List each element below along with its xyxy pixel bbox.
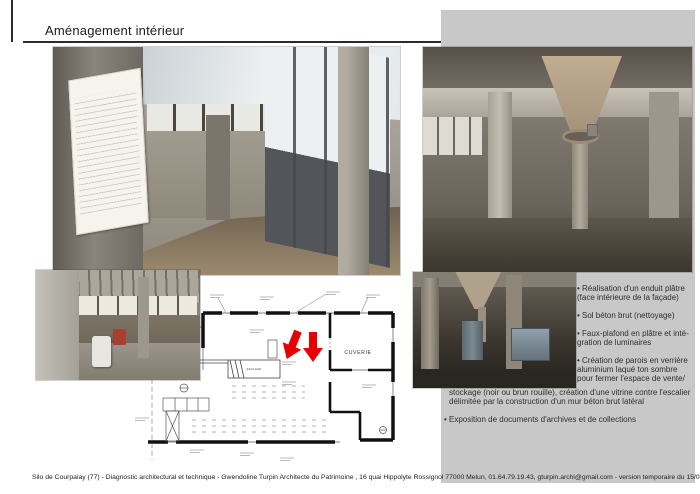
photo-red-chair <box>113 329 126 344</box>
photo-interior-empty-hall <box>36 270 200 380</box>
document-page: Aménagement intérieur <box>0 0 700 494</box>
notes-column: • Réalisation d'un enduit plâtre(face in… <box>577 284 695 383</box>
plan-room-walls <box>330 313 393 440</box>
footer-credit: Silo de Courpalay (77) - Diagnostic arch… <box>32 474 700 481</box>
note-line: délimitée par la construction d'un mur b… <box>444 397 694 406</box>
photo-white-sack <box>92 336 112 367</box>
plan-stair-label: ESCALIER <box>247 367 263 371</box>
plan-room-label-cuverie: CUVERIE <box>344 350 371 356</box>
note-line: aluminium laqué ton sombre <box>577 365 695 374</box>
red-arrows-annotation <box>277 327 323 362</box>
photo-glass-mullions <box>265 47 390 268</box>
photo-column <box>206 115 230 220</box>
photo-pinned-drawing-lines <box>74 87 142 216</box>
note-line: • Faux-plafond en plâtre et inté- <box>577 329 695 338</box>
photo-column <box>138 277 149 358</box>
page-title: Aménagement intérieur <box>45 23 184 38</box>
photo-floor-layer <box>413 369 576 388</box>
photo-interior-hopper <box>423 47 692 272</box>
note-line: • Réalisation d'un enduit plâtre <box>577 284 695 293</box>
photo-column <box>338 47 369 275</box>
photo-window-strip <box>423 117 482 155</box>
left-margin-rule <box>11 0 13 42</box>
note-line: • Création de parois en verrière <box>577 356 695 365</box>
note-line: (face intérieure de la façade) <box>577 293 695 302</box>
photo-machine <box>511 328 550 361</box>
photo-wall-layer <box>36 270 79 380</box>
photo-floor-layer <box>423 218 692 272</box>
note-line: • Sol béton brut (nettoyage) <box>577 311 695 320</box>
note-line: pour fermer l'espace de vente/ <box>577 374 695 383</box>
notes-full-width: stockage (noir ou brun rouille), créatio… <box>444 388 694 424</box>
plan-storage-dashes <box>192 386 330 432</box>
photo-duct <box>462 321 483 360</box>
note-line: • Exposition de documents d'archives et … <box>444 415 694 424</box>
photo-interior-verriere <box>53 47 400 275</box>
photo-interior-machinery <box>413 272 576 388</box>
note-line: gration de luminaires <box>577 338 695 347</box>
note-line: stockage (noir ou brun rouille), créatio… <box>444 388 694 397</box>
photo-electric-box <box>587 124 598 137</box>
photo-pipe <box>572 139 588 229</box>
